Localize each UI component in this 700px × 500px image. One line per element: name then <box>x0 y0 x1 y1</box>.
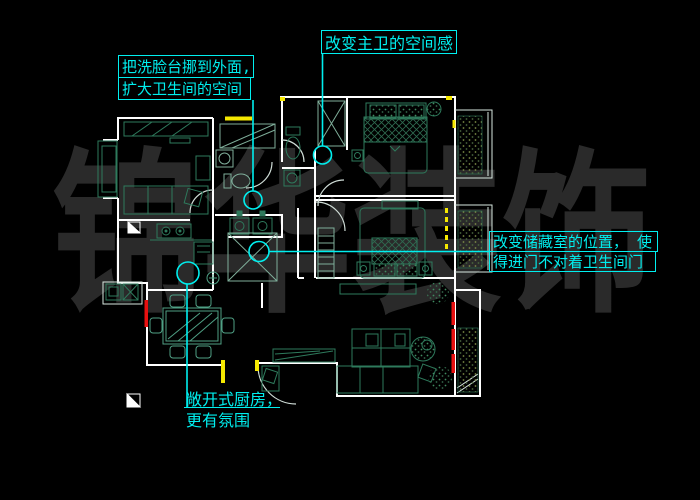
note-storage-line1: 改变储藏室的位置， 使 <box>489 231 658 252</box>
balcony-plants <box>458 116 482 392</box>
note-washbasin-line2: 扩大卫生间的空间 <box>118 77 251 100</box>
note-storage-line2: 得进门不对着卫生间门 <box>489 251 656 272</box>
note-washbasin-line1: 把洗脸台挪到外面, <box>118 55 254 78</box>
cad-floorplan-view: 锦华装饰 <box>0 0 700 500</box>
note-kitchen-line1: 敞开式厨房， <box>184 389 280 408</box>
note-kitchen-line2: 更有氛围 <box>184 410 280 428</box>
living-room-furniture <box>262 329 452 393</box>
note-master-bath: 改变主卫的空间感, <box>321 30 457 54</box>
